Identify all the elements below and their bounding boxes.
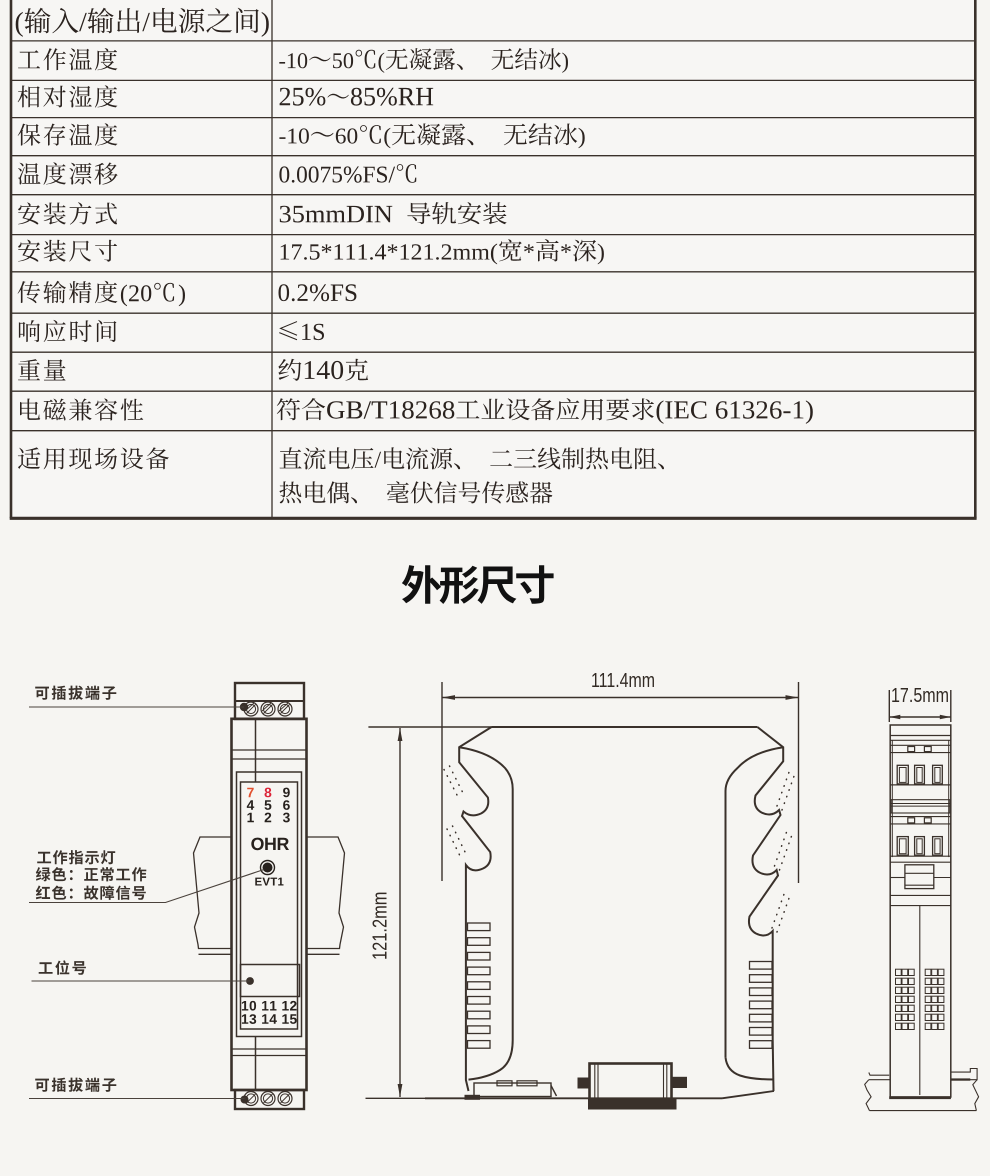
svg-text:111.4mm: 111.4mm	[591, 669, 655, 692]
svg-text:121.2mm: 121.2mm	[369, 892, 392, 961]
svg-text:17.5mm: 17.5mm	[891, 684, 949, 707]
